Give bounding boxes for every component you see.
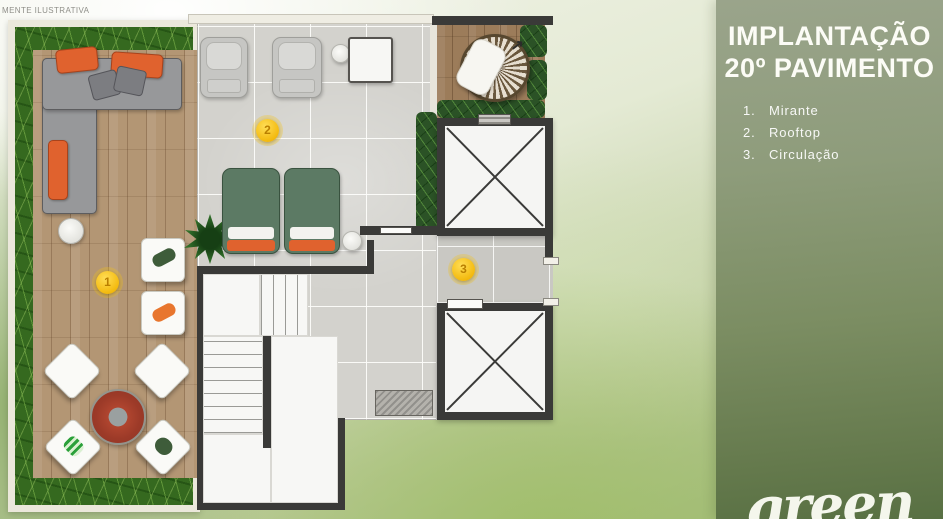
pouf-table	[348, 37, 393, 83]
elevator-1-door	[478, 114, 511, 125]
armchair-white-2	[141, 291, 185, 335]
side-table-round-1	[58, 218, 84, 244]
disclaimer-watermark: MENTE ILUSTRATIVA	[2, 6, 89, 15]
hedge-column	[416, 112, 437, 234]
side-table-round-3	[342, 231, 362, 251]
stair-wall-right	[338, 418, 345, 510]
sofa-cushion-1	[55, 46, 99, 74]
chair-front	[207, 79, 241, 93]
lounger-pillow	[290, 227, 334, 239]
chair-seat	[278, 42, 316, 70]
lounger-foot-cushion	[289, 240, 335, 251]
sofa-cushion-3	[48, 140, 68, 200]
chair-front	[279, 79, 315, 93]
presentation-slide: ↗	[0, 0, 943, 519]
corridor-side-wall	[367, 240, 374, 274]
stair-wall-left	[197, 268, 203, 510]
elevator-x-icon	[445, 311, 545, 412]
legend-item-circulacao: 3. Circulação	[743, 144, 943, 166]
corridor-door	[380, 227, 412, 234]
legend: 1. Mirante 2. Rooftop 3. Circulação	[743, 100, 943, 166]
pillow-orange	[150, 301, 177, 324]
marker-2: 2	[256, 119, 279, 142]
lounger-foot-cushion	[227, 240, 275, 251]
info-panel: IMPLANTAÇÃO 20º PAVIMENTO 1. Mirante 2. …	[716, 0, 943, 519]
stair-area-right	[271, 336, 338, 503]
legend-item-rooftop: 2. Rooftop	[743, 122, 943, 144]
pillow-darkgreen	[150, 246, 177, 269]
stair-wall-bottom	[197, 503, 345, 510]
hedge-right	[527, 60, 547, 100]
legend-number: 2.	[743, 122, 761, 144]
stair-flight-upper	[260, 274, 308, 336]
marker-3: 3	[452, 258, 475, 281]
stairs-top-wall	[197, 266, 374, 274]
floor-plan: ↗	[0, 0, 716, 519]
legend-number: 1.	[743, 100, 761, 122]
stair-landing-top	[203, 274, 260, 336]
coffee-table-red	[90, 389, 146, 445]
deck-divider-wall	[430, 25, 437, 118]
wall-cap-1	[543, 257, 559, 265]
legend-number: 3.	[743, 144, 761, 166]
title-line-2: 20º PAVIMENTO	[716, 53, 943, 85]
lounger-pillow	[228, 227, 274, 239]
armchair-white-1	[141, 238, 185, 282]
stair-flight-lower	[203, 336, 263, 434]
north-arrow-icon: ↗	[510, 35, 525, 55]
elevator-2-door	[447, 299, 483, 309]
elevator-1	[437, 118, 553, 236]
parapet-wall	[188, 14, 434, 24]
stair-landing-bottom	[203, 434, 271, 503]
vent-grate	[375, 390, 433, 416]
pillow-green-striped	[62, 434, 86, 458]
sun-lounger-2	[284, 168, 340, 254]
elevator-2	[437, 303, 553, 420]
marker-1: 1	[96, 271, 119, 294]
stair-wall-divider	[263, 336, 271, 448]
legend-label: Circulação	[769, 144, 839, 166]
armchair-gray-1	[200, 37, 248, 98]
elevator-x-icon	[445, 126, 545, 228]
chair-seat	[206, 42, 242, 70]
brand-logo: green	[716, 468, 943, 519]
legend-label: Mirante	[769, 100, 819, 122]
armchair-gray-2	[272, 37, 322, 98]
wall-cap-2	[543, 298, 559, 306]
legend-item-mirante: 1. Mirante	[743, 100, 943, 122]
top-wall	[432, 16, 553, 25]
pillow-darkgreen	[152, 434, 176, 458]
title-line-1: IMPLANTAÇÃO	[716, 21, 943, 53]
sun-lounger-1	[222, 168, 280, 254]
legend-label: Rooftop	[769, 122, 821, 144]
page-title: IMPLANTAÇÃO 20º PAVIMENTO	[716, 21, 943, 85]
